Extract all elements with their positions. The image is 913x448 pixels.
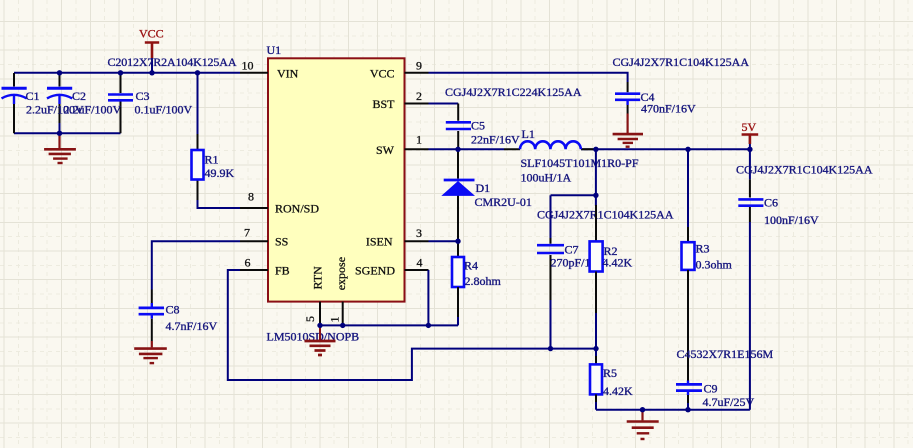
svg-text:CGJ4J2X7R1C104K125AA: CGJ4J2X7R1C104K125AA [537, 208, 674, 222]
svg-text:VCC: VCC [139, 27, 164, 41]
svg-text:22nF/16V: 22nF/16V [471, 133, 520, 147]
svg-text:C6: C6 [764, 196, 778, 210]
svg-text:5: 5 [303, 316, 317, 322]
svg-text:1: 1 [328, 317, 342, 323]
svg-text:3: 3 [416, 226, 422, 240]
svg-text:CGJ4J2X7R1C104K125AA: CGJ4J2X7R1C104K125AA [613, 55, 750, 69]
svg-text:C5: C5 [471, 119, 485, 133]
svg-text:CMR2U-01: CMR2U-01 [475, 195, 532, 209]
svg-text:U1: U1 [267, 43, 282, 57]
svg-text:1: 1 [416, 133, 422, 147]
svg-text:expose: expose [334, 257, 348, 290]
svg-text:100uH/1A: 100uH/1A [521, 171, 572, 185]
svg-text:FB: FB [275, 264, 290, 278]
svg-text:7: 7 [244, 226, 250, 240]
svg-text:SGEND: SGEND [355, 264, 395, 278]
svg-text:ISEN: ISEN [366, 235, 393, 249]
svg-text:C1: C1 [26, 89, 40, 103]
svg-text:C2: C2 [72, 89, 86, 103]
svg-text:C8: C8 [166, 302, 180, 316]
svg-text:D1: D1 [476, 181, 491, 195]
svg-text:RTN: RTN [311, 266, 325, 290]
svg-text:4.7uF/25V: 4.7uF/25V [703, 395, 755, 409]
svg-text:VCC: VCC [370, 67, 395, 81]
svg-text:10: 10 [242, 58, 254, 72]
svg-text:0.3ohm: 0.3ohm [696, 258, 733, 272]
svg-text:R5: R5 [603, 366, 617, 380]
svg-text:4.7nF/16V: 4.7nF/16V [166, 319, 218, 333]
svg-text:C3: C3 [136, 89, 150, 103]
svg-text:470nF/16V: 470nF/16V [641, 102, 696, 116]
svg-text:8: 8 [248, 189, 254, 203]
svg-text:CGJ4J2X7R1C224K125AA: CGJ4J2X7R1C224K125AA [445, 85, 582, 99]
svg-text:4.42K: 4.42K [603, 384, 633, 398]
svg-text:SLF1045T101M1R0-PF: SLF1045T101M1R0-PF [521, 156, 639, 170]
svg-text:SW: SW [376, 143, 395, 157]
svg-text:R4: R4 [464, 259, 478, 273]
svg-text:6: 6 [245, 256, 251, 270]
svg-text:C4532X7R1E156M: C4532X7R1E156M [677, 347, 774, 361]
svg-text:0.1uF/100V: 0.1uF/100V [135, 103, 193, 117]
svg-text:4.42K: 4.42K [603, 255, 633, 269]
svg-text:R3: R3 [696, 242, 710, 256]
svg-text:9: 9 [416, 58, 422, 72]
svg-text:VIN: VIN [277, 67, 299, 81]
svg-text:RON/SD: RON/SD [275, 202, 319, 216]
svg-text:4: 4 [417, 256, 423, 270]
svg-text:2: 2 [416, 89, 422, 103]
svg-text:SS: SS [275, 235, 288, 249]
svg-text:C9: C9 [704, 382, 718, 396]
svg-text:CGJ4J2X7R1C104K125AA: CGJ4J2X7R1C104K125AA [736, 163, 873, 177]
svg-text:2.8ohm: 2.8ohm [465, 274, 502, 288]
svg-text:49.9K: 49.9K [205, 166, 235, 180]
svg-text:C2012X7R2A104K125AA: C2012X7R2A104K125AA [108, 55, 237, 69]
svg-text:R1: R1 [205, 153, 219, 167]
svg-text:5V: 5V [742, 120, 757, 134]
svg-text:100nF/16V: 100nF/16V [764, 213, 819, 227]
svg-text:BST: BST [372, 97, 395, 111]
svg-text:L1: L1 [522, 127, 535, 141]
svg-text:2.2uF/100V: 2.2uF/100V [64, 103, 122, 117]
